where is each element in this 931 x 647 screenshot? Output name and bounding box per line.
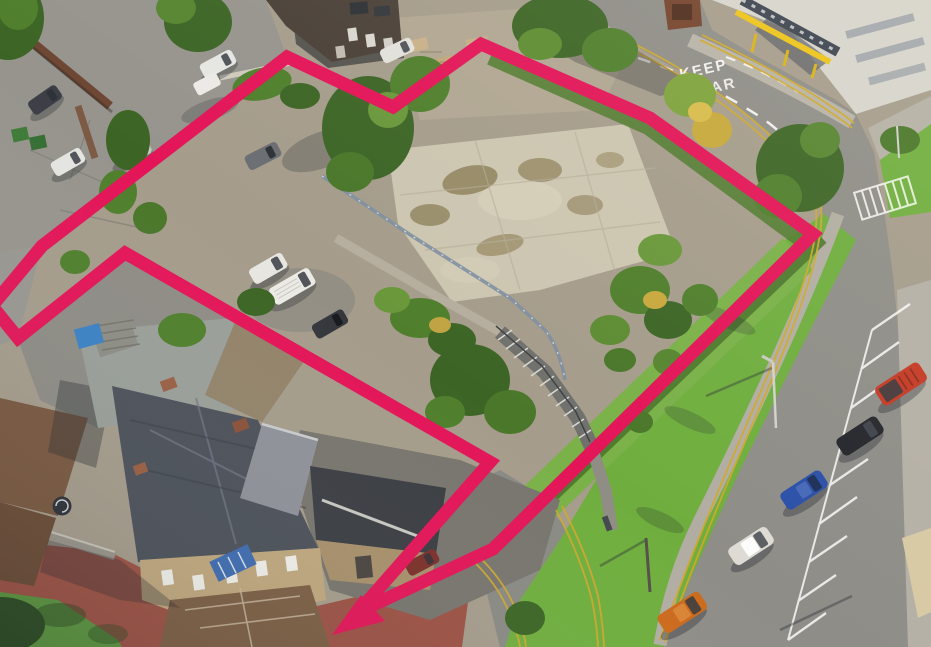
- aerial-photo: KEEP CLEAR: [0, 0, 931, 647]
- light-wash: [0, 0, 931, 647]
- aerial-photo-canvas: KEEP CLEAR: [0, 0, 931, 647]
